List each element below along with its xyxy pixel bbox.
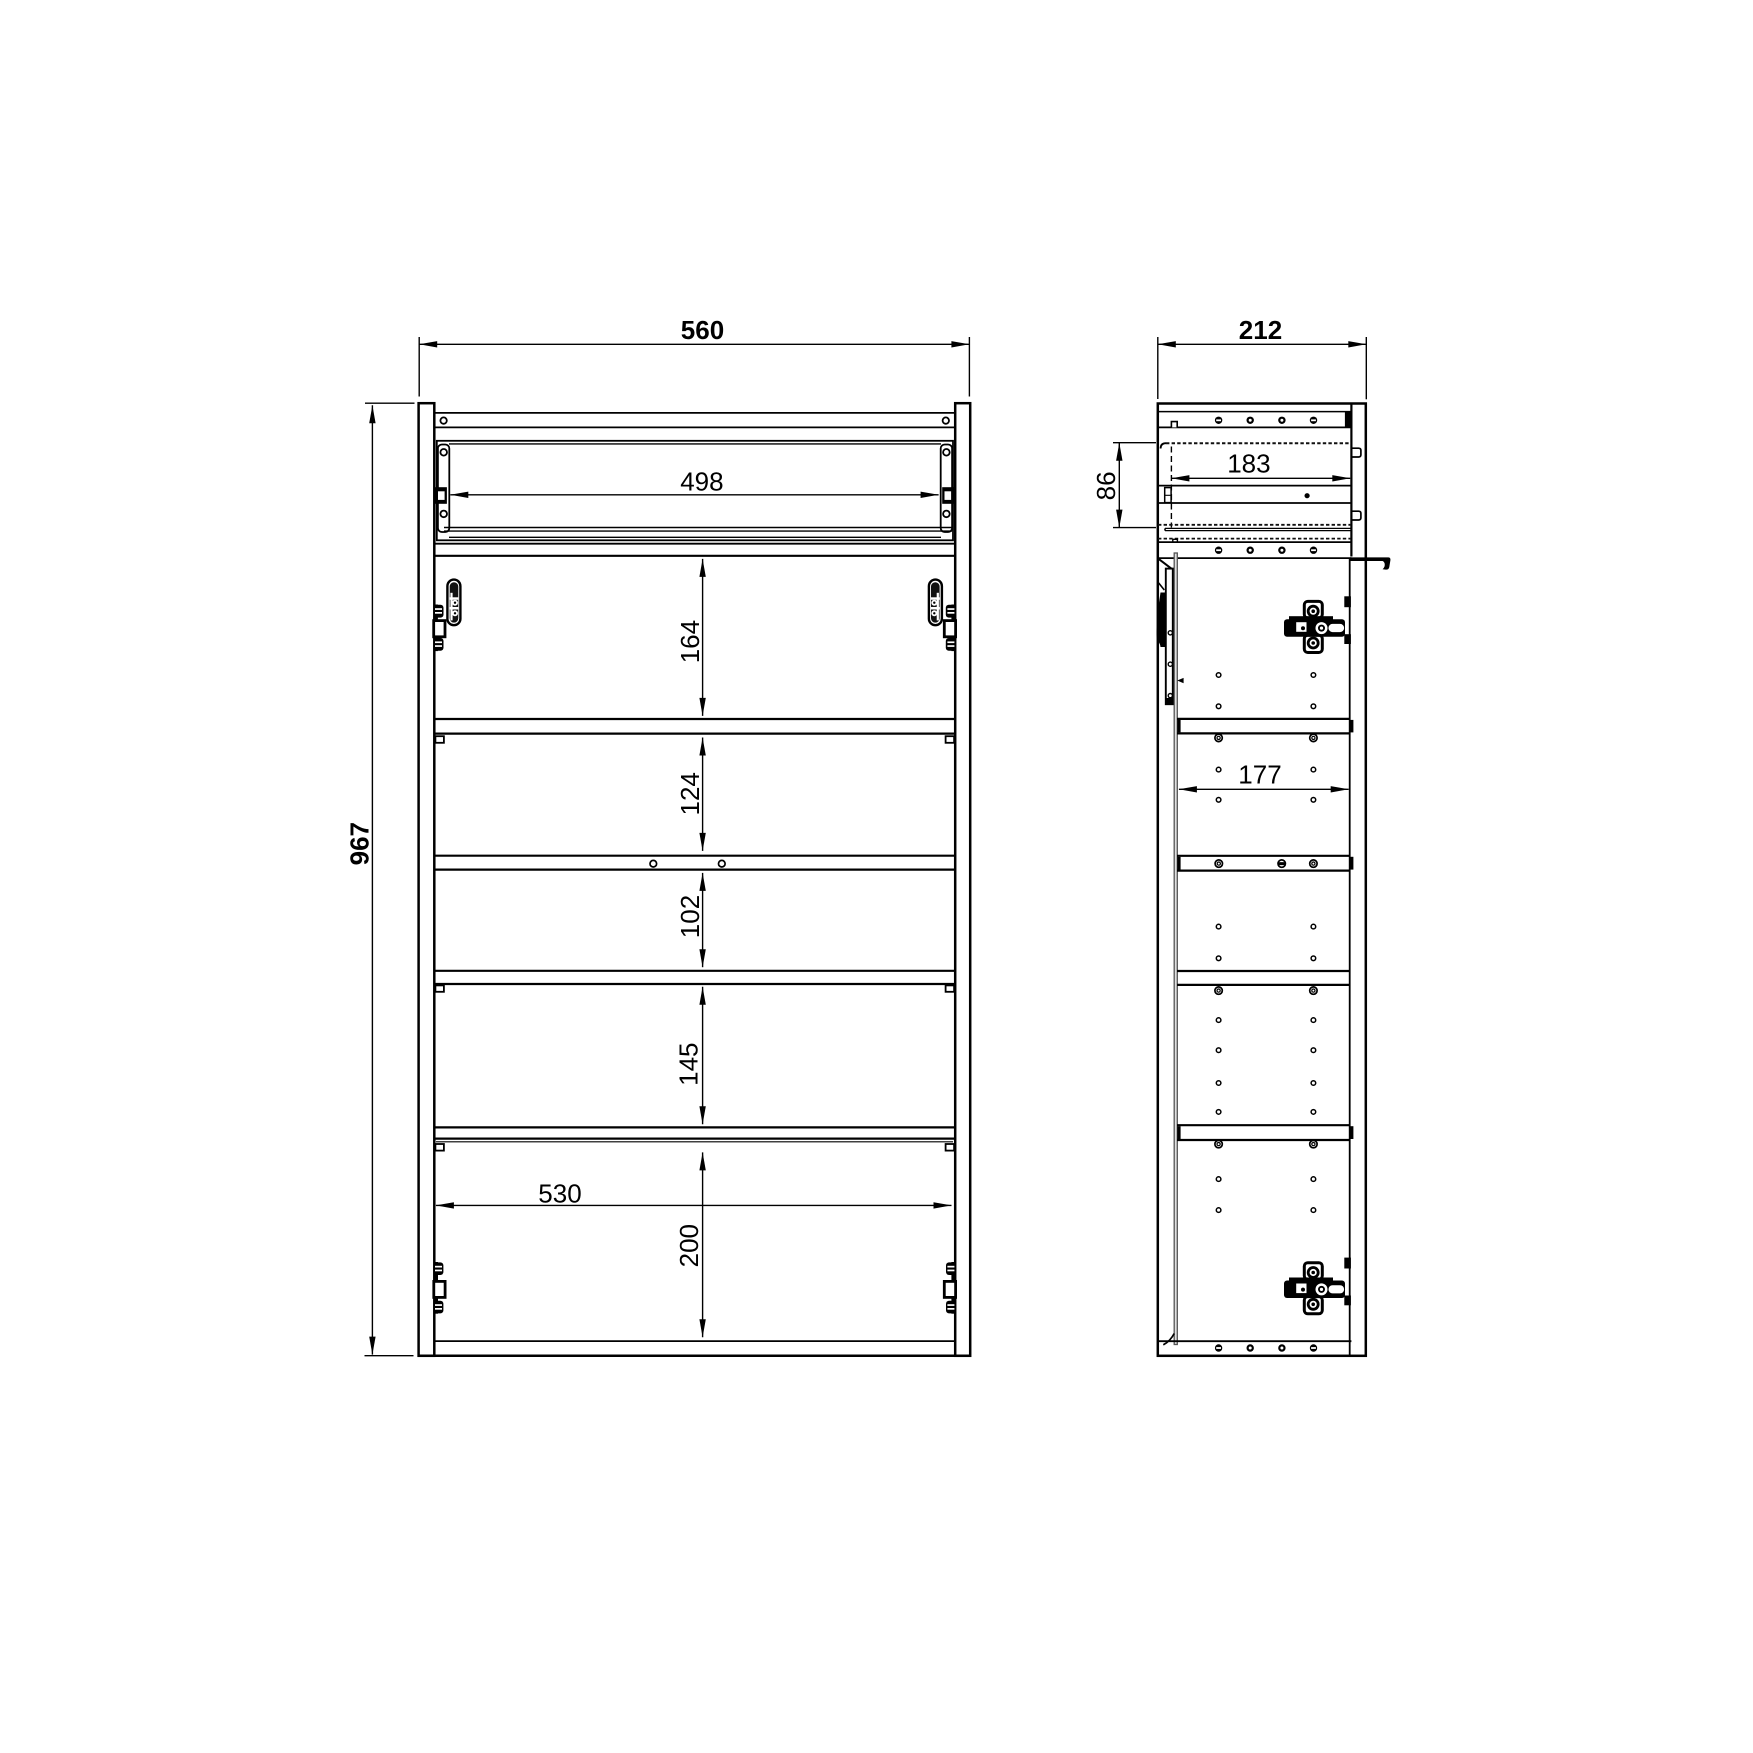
svg-text:183: 183 (1227, 449, 1270, 479)
svg-text:530: 530 (538, 1179, 581, 1209)
svg-text:967: 967 (345, 822, 375, 865)
svg-text:164: 164 (675, 620, 705, 663)
svg-text:212: 212 (1239, 315, 1282, 345)
svg-text:177: 177 (1238, 760, 1281, 790)
svg-text:145: 145 (674, 1043, 704, 1086)
svg-text:124: 124 (675, 772, 705, 815)
svg-text:200: 200 (674, 1224, 704, 1267)
svg-text:86: 86 (1091, 471, 1121, 500)
svg-text:498: 498 (680, 467, 723, 497)
svg-text:560: 560 (681, 315, 724, 345)
svg-text:102: 102 (675, 895, 705, 938)
